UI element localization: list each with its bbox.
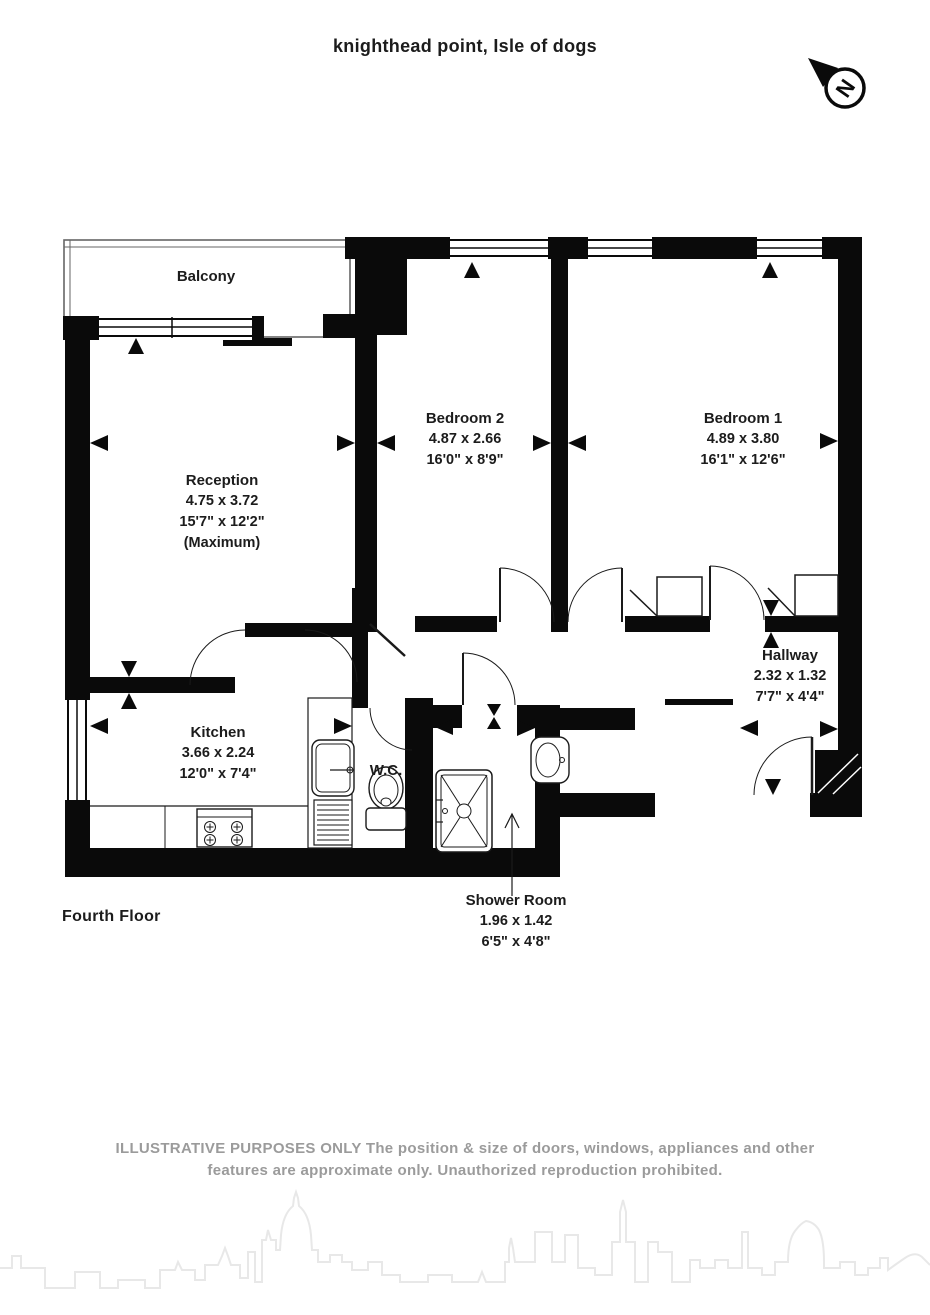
room-name: Reception: [179, 470, 264, 491]
room-name: Shower Room: [466, 890, 567, 911]
room-dims-metric: 4.89 x 3.80: [700, 429, 785, 450]
room-name: Balcony: [177, 266, 235, 287]
room-label-reception: Reception 4.75 x 3.72 15'7" x 12'2" (Max…: [179, 470, 264, 554]
room-dims-metric: 3.66 x 2.24: [179, 743, 256, 764]
room-label-wc: W.C.: [370, 760, 403, 781]
room-name: Bedroom 1: [700, 408, 785, 429]
kitchen-window: [65, 700, 90, 800]
draining-board-icon: [314, 800, 352, 845]
room-dims-imperial: 6'5" x 4'8": [466, 932, 567, 953]
reception-balcony-window: [99, 316, 252, 340]
compass-letter: N: [831, 75, 861, 102]
room-dims-metric: 2.32 x 1.32: [754, 666, 827, 687]
room-label-balcony: Balcony: [177, 266, 235, 287]
bedroom2-window: [450, 237, 548, 259]
room-dims-metric: 4.87 x 2.66: [426, 429, 504, 450]
room-name: Bedroom 2: [426, 408, 504, 429]
compass-icon: N: [808, 58, 864, 107]
reception-door: [190, 630, 245, 685]
disclaimer-line1: ILLUSTRATIVE PURPOSES ONLY The position …: [25, 1138, 905, 1160]
room-dims-imperial: 7'7" x 4'4": [754, 687, 827, 708]
room-name: W.C.: [370, 760, 403, 781]
room-dims-imperial: 16'1" x 12'6": [700, 450, 785, 471]
disclaimer-line2: features are approximate only. Unauthori…: [25, 1160, 905, 1182]
room-name: Hallway: [754, 645, 827, 666]
skyline-silhouette: [0, 1192, 930, 1288]
bedroom2-open-door-leaf: [370, 624, 405, 656]
corridor-door: [305, 630, 357, 682]
basin-icon: [531, 737, 569, 783]
shower-tray-icon: [436, 770, 492, 852]
room-label-bedroom1: Bedroom 1 4.89 x 3.80 16'1" x 12'6": [700, 408, 785, 471]
room-dims-metric: 4.75 x 3.72: [179, 491, 264, 512]
bedroom1-window-left: [588, 237, 652, 259]
doors: [190, 566, 812, 795]
bedroom1-wardrobes: [630, 575, 838, 616]
entrance-door: [754, 737, 812, 795]
room-dims-imperial: 16'0" x 8'9": [426, 450, 504, 471]
room-dims-note: (Maximum): [179, 533, 264, 554]
room-label-bedroom2: Bedroom 2 4.87 x 2.66 16'0" x 8'9": [426, 408, 504, 471]
room-label-shower: Shower Room 1.96 x 1.42 6'5" x 4'8": [466, 890, 567, 953]
room-label-kitchen: Kitchen 3.66 x 2.24 12'0" x 7'4": [179, 722, 256, 785]
cooker-icon: [197, 809, 252, 847]
floor-label: Fourth Floor: [62, 908, 161, 926]
room-dims-imperial: 15'7" x 12'2": [179, 512, 264, 533]
bedroom2-door: [500, 568, 554, 622]
shower-room-door: [463, 653, 515, 705]
bedroom1-door-right: [710, 566, 764, 620]
room-name: Kitchen: [179, 722, 256, 743]
floorplan-page: knighthead point, Isle of dogs: [0, 0, 930, 1315]
sink-icon: [312, 740, 354, 796]
room-dims-imperial: 12'0" x 7'4": [179, 764, 256, 785]
bedroom1-door-left: [568, 568, 622, 622]
disclaimer-text: ILLUSTRATIVE PURPOSES ONLY The position …: [25, 1138, 905, 1182]
bedroom1-window-right: [757, 237, 822, 259]
room-label-hallway: Hallway 2.32 x 1.32 7'7" x 4'4": [754, 645, 827, 708]
room-dims-metric: 1.96 x 1.42: [466, 911, 567, 932]
